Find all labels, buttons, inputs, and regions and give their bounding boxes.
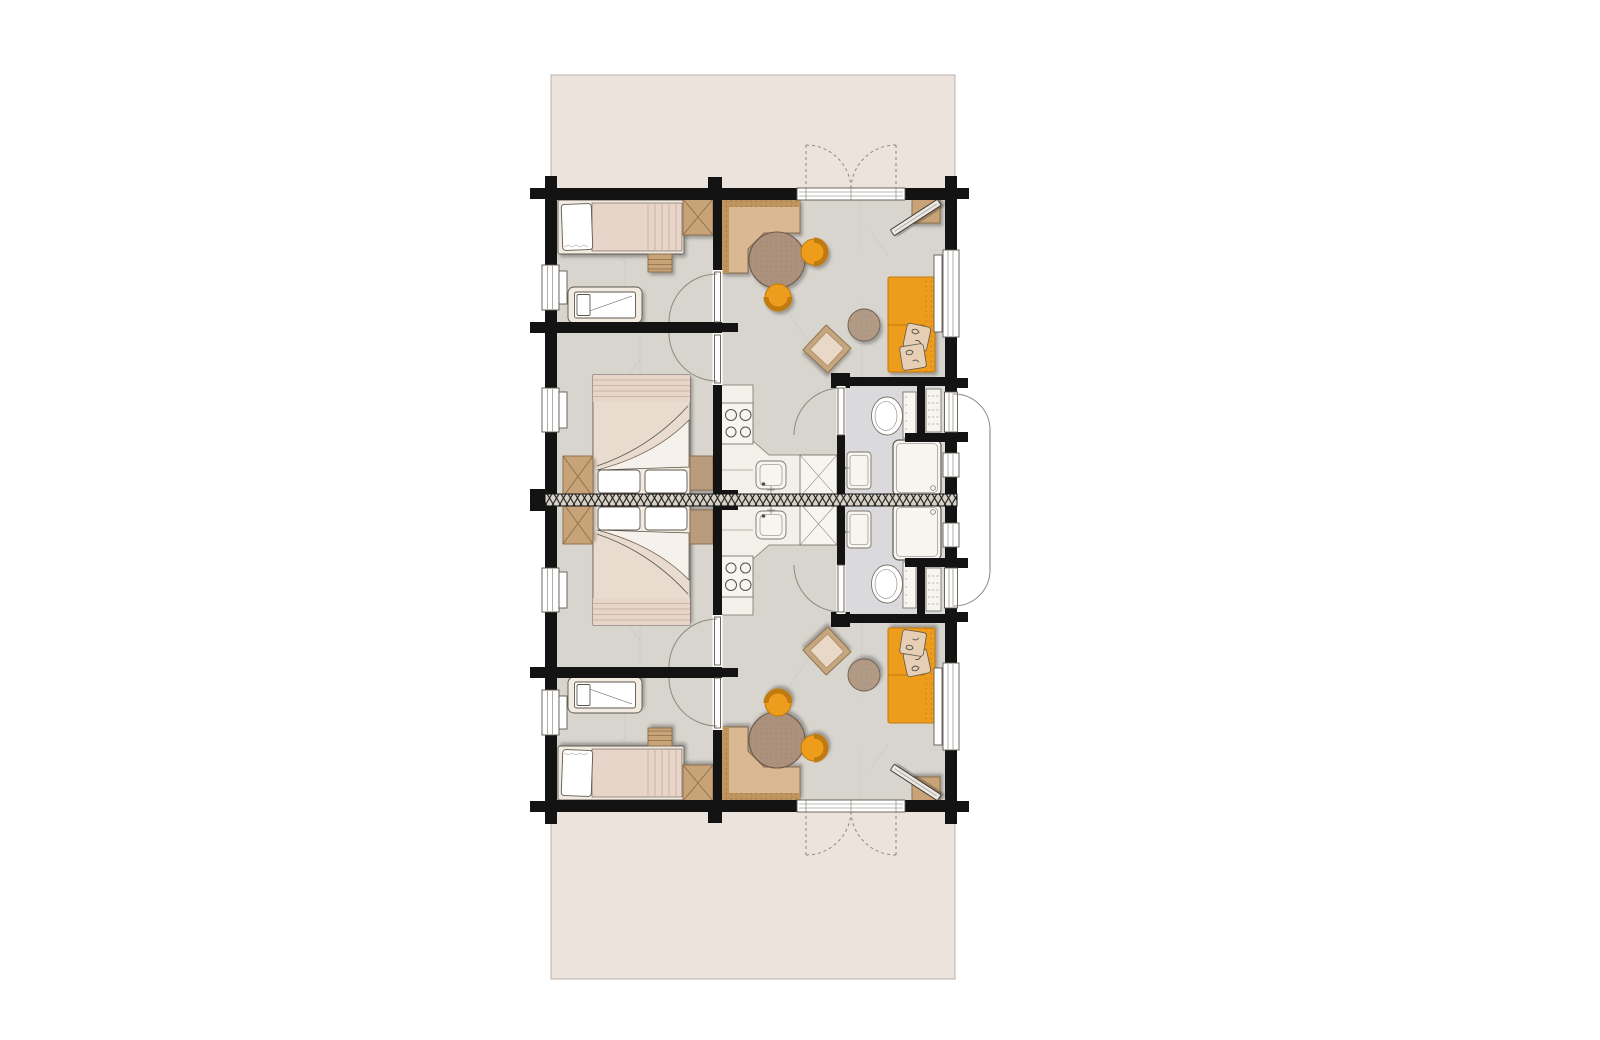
unit-bottom [530, 500, 990, 855]
floor-plan-drawing [0, 0, 1600, 1040]
party-wall [545, 494, 957, 506]
floor-plan-canvas [0, 0, 1600, 1040]
unit-top [530, 145, 990, 500]
